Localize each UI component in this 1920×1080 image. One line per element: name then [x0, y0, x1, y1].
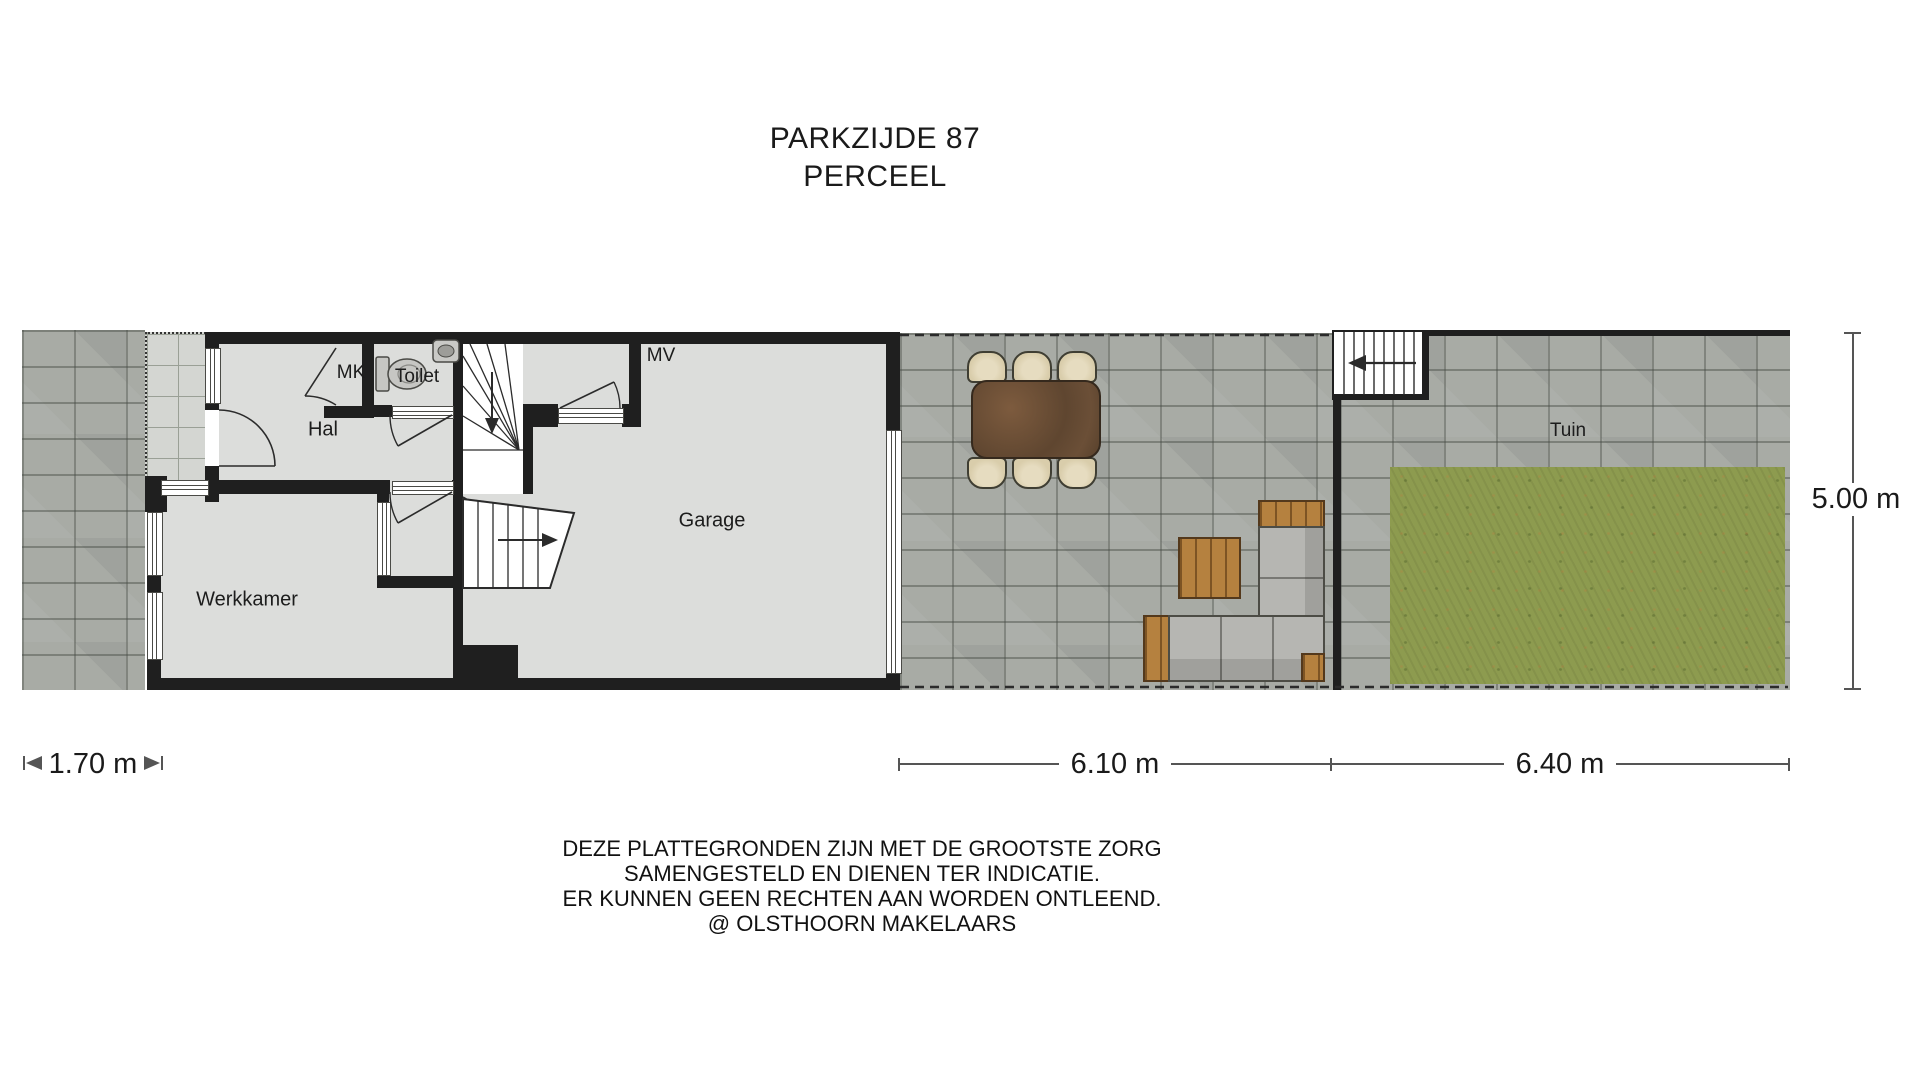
dining-chair	[1057, 457, 1097, 489]
room-label-garage: Garage	[679, 510, 746, 533]
coffee-table	[1178, 537, 1241, 599]
toilet-threshold	[392, 406, 454, 419]
dim-terrace-label: 6.10 m	[1059, 748, 1172, 781]
dim-line	[1616, 763, 1788, 765]
hal-window	[205, 348, 221, 404]
disclaimer-line-3: ER KUNNEN GEEN RECHTEN AAN WORDEN ONTLEE…	[462, 886, 1262, 911]
wall-lobby-bottom	[377, 576, 463, 588]
entry-path-tiles	[145, 332, 209, 482]
vestibule-threshold	[558, 408, 624, 424]
wall-mk-bottom	[324, 406, 374, 418]
wall-left-a	[205, 332, 219, 348]
werkkamer-window-a	[147, 512, 163, 576]
dining-chair	[1012, 457, 1052, 489]
garage-block	[463, 645, 518, 678]
wall-lobby-top	[377, 494, 389, 502]
garden-side-fence	[1333, 396, 1341, 690]
werkkamer-window-b	[147, 592, 163, 660]
room-label-tuin: Tuin	[1550, 420, 1586, 442]
room-label-toilet: Toilet	[395, 366, 439, 388]
dim-line	[1332, 763, 1504, 765]
garage-door-window	[886, 430, 902, 674]
front-paving	[22, 330, 145, 690]
lobby-window	[377, 502, 391, 576]
room-label-werkkamer: Werkkamer	[196, 589, 298, 612]
wall-toilet-bottom	[374, 405, 392, 417]
page-title: PARKZIJDE 87 PERCEEL	[690, 120, 1060, 196]
dim-garden-label: 6.40 m	[1504, 748, 1617, 781]
floorplan-canvas: PARKZIJDE 87 PERCEEL	[0, 0, 1920, 1080]
dining-chair	[1012, 351, 1052, 383]
title-line-2: PERCEEL	[690, 158, 1060, 196]
dim-line	[1171, 763, 1330, 765]
wall-vestibule-bottom-r	[622, 404, 641, 427]
dining-chair	[967, 457, 1007, 489]
winder-stairs-area	[463, 344, 523, 494]
garden-lawn	[1390, 467, 1785, 684]
sofa-corner	[1301, 653, 1325, 682]
room-label-hal: Hal	[308, 419, 338, 442]
disclaimer: DEZE PLATTEGRONDEN ZIJN MET DE GROOTSTE …	[462, 836, 1262, 936]
dim-tick	[1844, 688, 1861, 690]
werkkamer-front-window	[161, 480, 209, 496]
wall-hal-werkkamer-a	[205, 480, 390, 494]
dimension-terrace-width: 6.10 m	[898, 749, 1332, 779]
house-floor	[219, 344, 886, 678]
wall-top	[207, 332, 900, 344]
dim-line	[900, 763, 1059, 765]
wall-wk-left-1	[147, 574, 161, 592]
wall-bottom	[147, 678, 900, 690]
dimension-garden-width: 6.40 m	[1330, 749, 1790, 779]
disclaimer-line-1: DEZE PLATTEGRONDEN ZIJN MET DE GROOTSTE …	[462, 836, 1262, 861]
wall-wk-left-2	[147, 658, 161, 678]
werkkamer-floor	[161, 480, 219, 678]
room-label-mk: MK	[337, 362, 366, 384]
wall-winder-vestibule	[523, 404, 533, 494]
disclaimer-line-2: SAMENGESTELD EN DIENEN TER INDICATIE.	[462, 861, 1262, 886]
dimension-front-width: 1.70 m	[40, 748, 146, 781]
front-door-opening	[205, 410, 219, 466]
title-line-1: PARKZIJDE 87	[690, 120, 1060, 158]
dining-table	[971, 380, 1101, 459]
dim-tick	[1788, 758, 1790, 771]
room-label-mv: MV	[647, 345, 676, 367]
dining-chair	[1057, 351, 1097, 383]
garden-stairs	[1332, 330, 1429, 400]
dining-chair	[967, 351, 1007, 383]
wall-core-vertical	[453, 344, 463, 678]
wall-vestibule-right	[629, 344, 641, 404]
wall-right-upper	[886, 344, 900, 430]
disclaimer-line-4: @ OLSTHOORN MAKELAARS	[462, 911, 1262, 936]
sofa-arm-left	[1143, 615, 1170, 682]
wall-vestibule-bottom-l	[533, 404, 558, 427]
dim-depth-label: 5.00 m	[1808, 483, 1904, 516]
lobby-threshold	[392, 481, 454, 495]
sofa-arm-top	[1258, 500, 1325, 528]
